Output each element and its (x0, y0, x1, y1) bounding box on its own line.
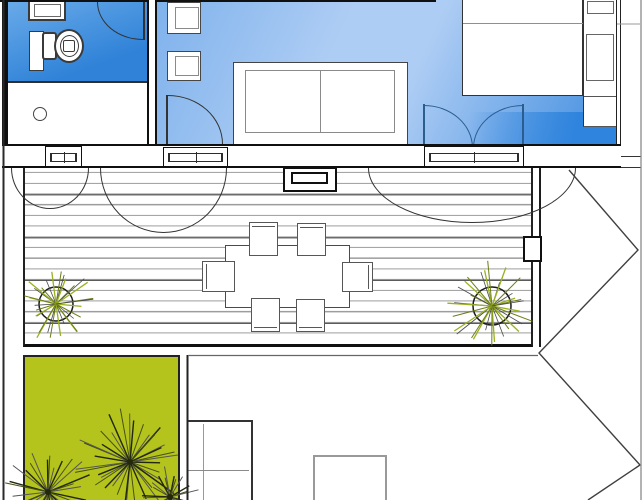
deck-post (523, 236, 542, 262)
lounger-divider-h (188, 470, 249, 471)
bathroom-sink-basin (34, 4, 61, 17)
dining-chair-top-right (297, 223, 326, 256)
lawn (23, 355, 180, 500)
chair-back-line (252, 226, 275, 227)
armchair-1 (167, 2, 201, 34)
window-bathroom-glazing (50, 153, 77, 162)
bed-pillow-1 (587, 1, 614, 14)
dining-chair-top-left (249, 222, 278, 256)
chair-back-line (206, 264, 207, 289)
chair-back-line (254, 327, 277, 328)
dining-chair-left (202, 261, 235, 292)
dining-chair-bottom-left (251, 298, 280, 332)
floor-plan-canvas (0, 0, 644, 500)
entry-step-inner (291, 172, 328, 184)
wall-stub-right (621, 156, 641, 168)
wall-bathroom-living (147, 0, 157, 146)
armchair-2-seat (175, 56, 199, 76)
shower-drain (33, 107, 47, 121)
armchair-1-seat (175, 7, 199, 29)
dining-chair-bottom-right (296, 299, 325, 332)
top-edge-line (0, 0, 436, 2)
bathroom-shower-floor (8, 81, 147, 144)
wall-bedroom-right (616, 0, 621, 146)
bathroom-door-leaf (143, 2, 145, 40)
sofa-cushion-divider (320, 70, 321, 133)
bathroom-sink (28, 0, 66, 21)
plot-zigzag-boundary (539, 170, 640, 500)
window-living (163, 147, 228, 167)
patio-planter (313, 455, 387, 500)
wall-bottom-exterior (2, 144, 621, 168)
dining-table (225, 245, 350, 308)
window-bathroom (45, 146, 82, 167)
chair-back-line (299, 327, 322, 328)
bed-mattress (462, 0, 583, 96)
bed-headboard-column (583, 0, 617, 127)
lounger-divider-v (203, 424, 204, 500)
dining-chair-right (342, 262, 373, 292)
wall-left-exterior (2, 0, 8, 168)
toilet-seat (63, 40, 75, 52)
chair-back-line (300, 227, 323, 228)
entry-step (283, 167, 337, 192)
bed-pillow-2 (586, 34, 614, 81)
chair-back-line (368, 265, 369, 289)
window-living-glazing (168, 153, 223, 162)
french-door-glazing (429, 153, 519, 162)
patio-lounger (188, 420, 253, 500)
bed-column-divider (584, 96, 618, 97)
armchair-2 (167, 51, 201, 81)
deck-swing-arc-4 (472, 168, 576, 223)
french-door-threshold (424, 146, 524, 167)
sofa (233, 62, 408, 145)
